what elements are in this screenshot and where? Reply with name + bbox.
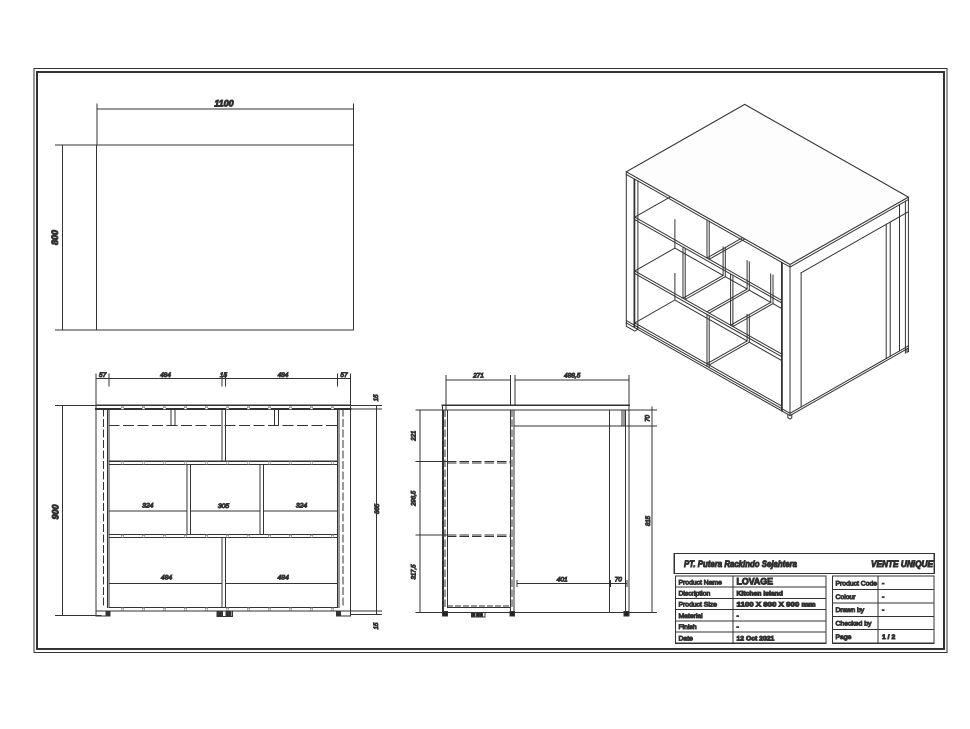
svg-text:12 Oct 2021: 12 Oct 2021	[737, 635, 775, 642]
svg-text:Page: Page	[836, 634, 852, 641]
svg-text:15: 15	[374, 622, 380, 629]
svg-text:484: 484	[161, 574, 173, 581]
svg-text:-: -	[882, 607, 884, 614]
svg-text:324: 324	[296, 502, 308, 509]
svg-text:Material: Material	[679, 613, 704, 620]
svg-text:865: 865	[375, 503, 381, 514]
svg-text:15: 15	[374, 394, 380, 401]
svg-text:70: 70	[615, 577, 623, 584]
svg-text:815: 815	[646, 515, 652, 526]
svg-text:-: -	[882, 580, 884, 587]
svg-text:-: -	[737, 613, 739, 620]
svg-text:Kitchen Island: Kitchen Island	[737, 591, 783, 598]
svg-text:800: 800	[50, 230, 60, 245]
svg-text:1100 X 800 X 900 mm: 1100 X 800 X 900 mm	[737, 602, 816, 609]
svg-text:1 / 2: 1 / 2	[882, 634, 895, 641]
svg-text:Discription: Discription	[679, 591, 711, 598]
svg-text:484: 484	[160, 372, 171, 379]
svg-text:LOVAGE: LOVAGE	[737, 576, 774, 586]
svg-text:271: 271	[472, 373, 484, 380]
svg-text:324: 324	[142, 502, 154, 509]
svg-text:Colour: Colour	[836, 594, 857, 601]
svg-text:Date: Date	[679, 635, 694, 642]
svg-text:484: 484	[278, 574, 290, 581]
svg-text:Finish: Finish	[679, 624, 697, 631]
svg-text:15: 15	[220, 372, 228, 379]
svg-text:401: 401	[557, 577, 568, 584]
svg-text:-: -	[737, 624, 739, 631]
svg-text:57: 57	[340, 372, 348, 379]
svg-text:Checked by: Checked by	[836, 621, 872, 628]
svg-text:317,5: 317,5	[411, 564, 417, 580]
svg-text:Product Size: Product Size	[679, 602, 718, 609]
svg-text:1100: 1100	[214, 99, 233, 109]
svg-text:488,5: 488,5	[564, 373, 581, 380]
svg-text:900: 900	[51, 504, 61, 519]
svg-text:Product Name: Product Name	[679, 579, 723, 586]
svg-text:Product Code: Product Code	[836, 580, 878, 587]
svg-text:221: 221	[411, 431, 417, 442]
svg-text:305: 305	[218, 503, 230, 510]
svg-text:Drawn by: Drawn by	[836, 607, 865, 614]
svg-text:484: 484	[278, 372, 289, 379]
svg-text:VENTE UNIQUE: VENTE UNIQUE	[871, 559, 934, 569]
svg-text:-: -	[882, 594, 884, 601]
svg-text:PT. Putera Rackindo Sejahtera: PT. Putera Rackindo Sejahtera	[684, 559, 797, 569]
svg-text:57: 57	[99, 372, 107, 379]
svg-text:70: 70	[646, 414, 652, 421]
svg-text:296,5: 296,5	[411, 490, 417, 507]
